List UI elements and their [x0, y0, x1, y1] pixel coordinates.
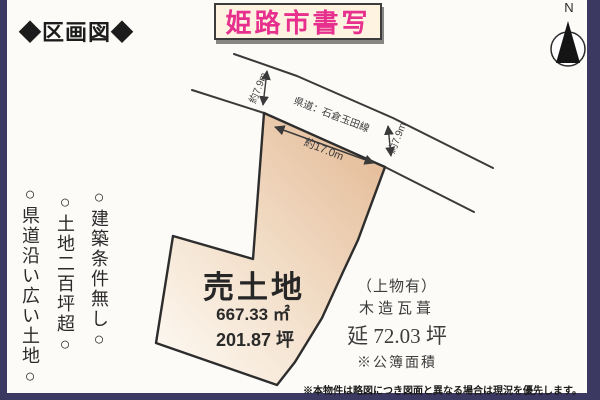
feature-wide-roadside-land: ○県道沿い広い土地○: [17, 184, 43, 388]
building-structure-label: 木造瓦葺: [334, 297, 460, 318]
plot-area-sqm-label: 667.33 ㎡: [186, 300, 320, 325]
building-note-label: （上物有）: [334, 275, 460, 296]
location-badge-text: 姫路市書写: [225, 3, 370, 40]
building-floor-area-label: 延 72.03 坪: [334, 320, 460, 350]
disclaimer-text: ※本物件は略図につき図面と異なる場合は現況を優先します。: [288, 382, 582, 397]
location-badge: 姫路市書写: [214, 3, 382, 40]
plot-area-tsubo-label: 201.87 坪: [186, 326, 324, 352]
feature-over-200-tsubo: ○土地二百坪超○: [52, 192, 78, 356]
page-title: ◆区画図◆: [19, 15, 134, 47]
frame-border-right: [587, 0, 600, 400]
frame-border-left: [0, 0, 7, 400]
compass-north-label: N: [560, 0, 578, 15]
building-info-block: （上物有） 木造瓦葺 延 72.03 坪 ※公簿面積: [334, 275, 460, 372]
registry-area-note-label: ※公簿面積: [334, 352, 460, 372]
road-lower-line-right: [385, 167, 474, 212]
plot-map-flyer: ◆区画図◆ 姫路市書写 N 県道：石倉玉田線 約17.0m 約7.9m 約7.9…: [0, 0, 600, 400]
feature-no-building-conditions: ○建築条件無し○: [86, 187, 112, 351]
compass-icon: [551, 21, 585, 66]
